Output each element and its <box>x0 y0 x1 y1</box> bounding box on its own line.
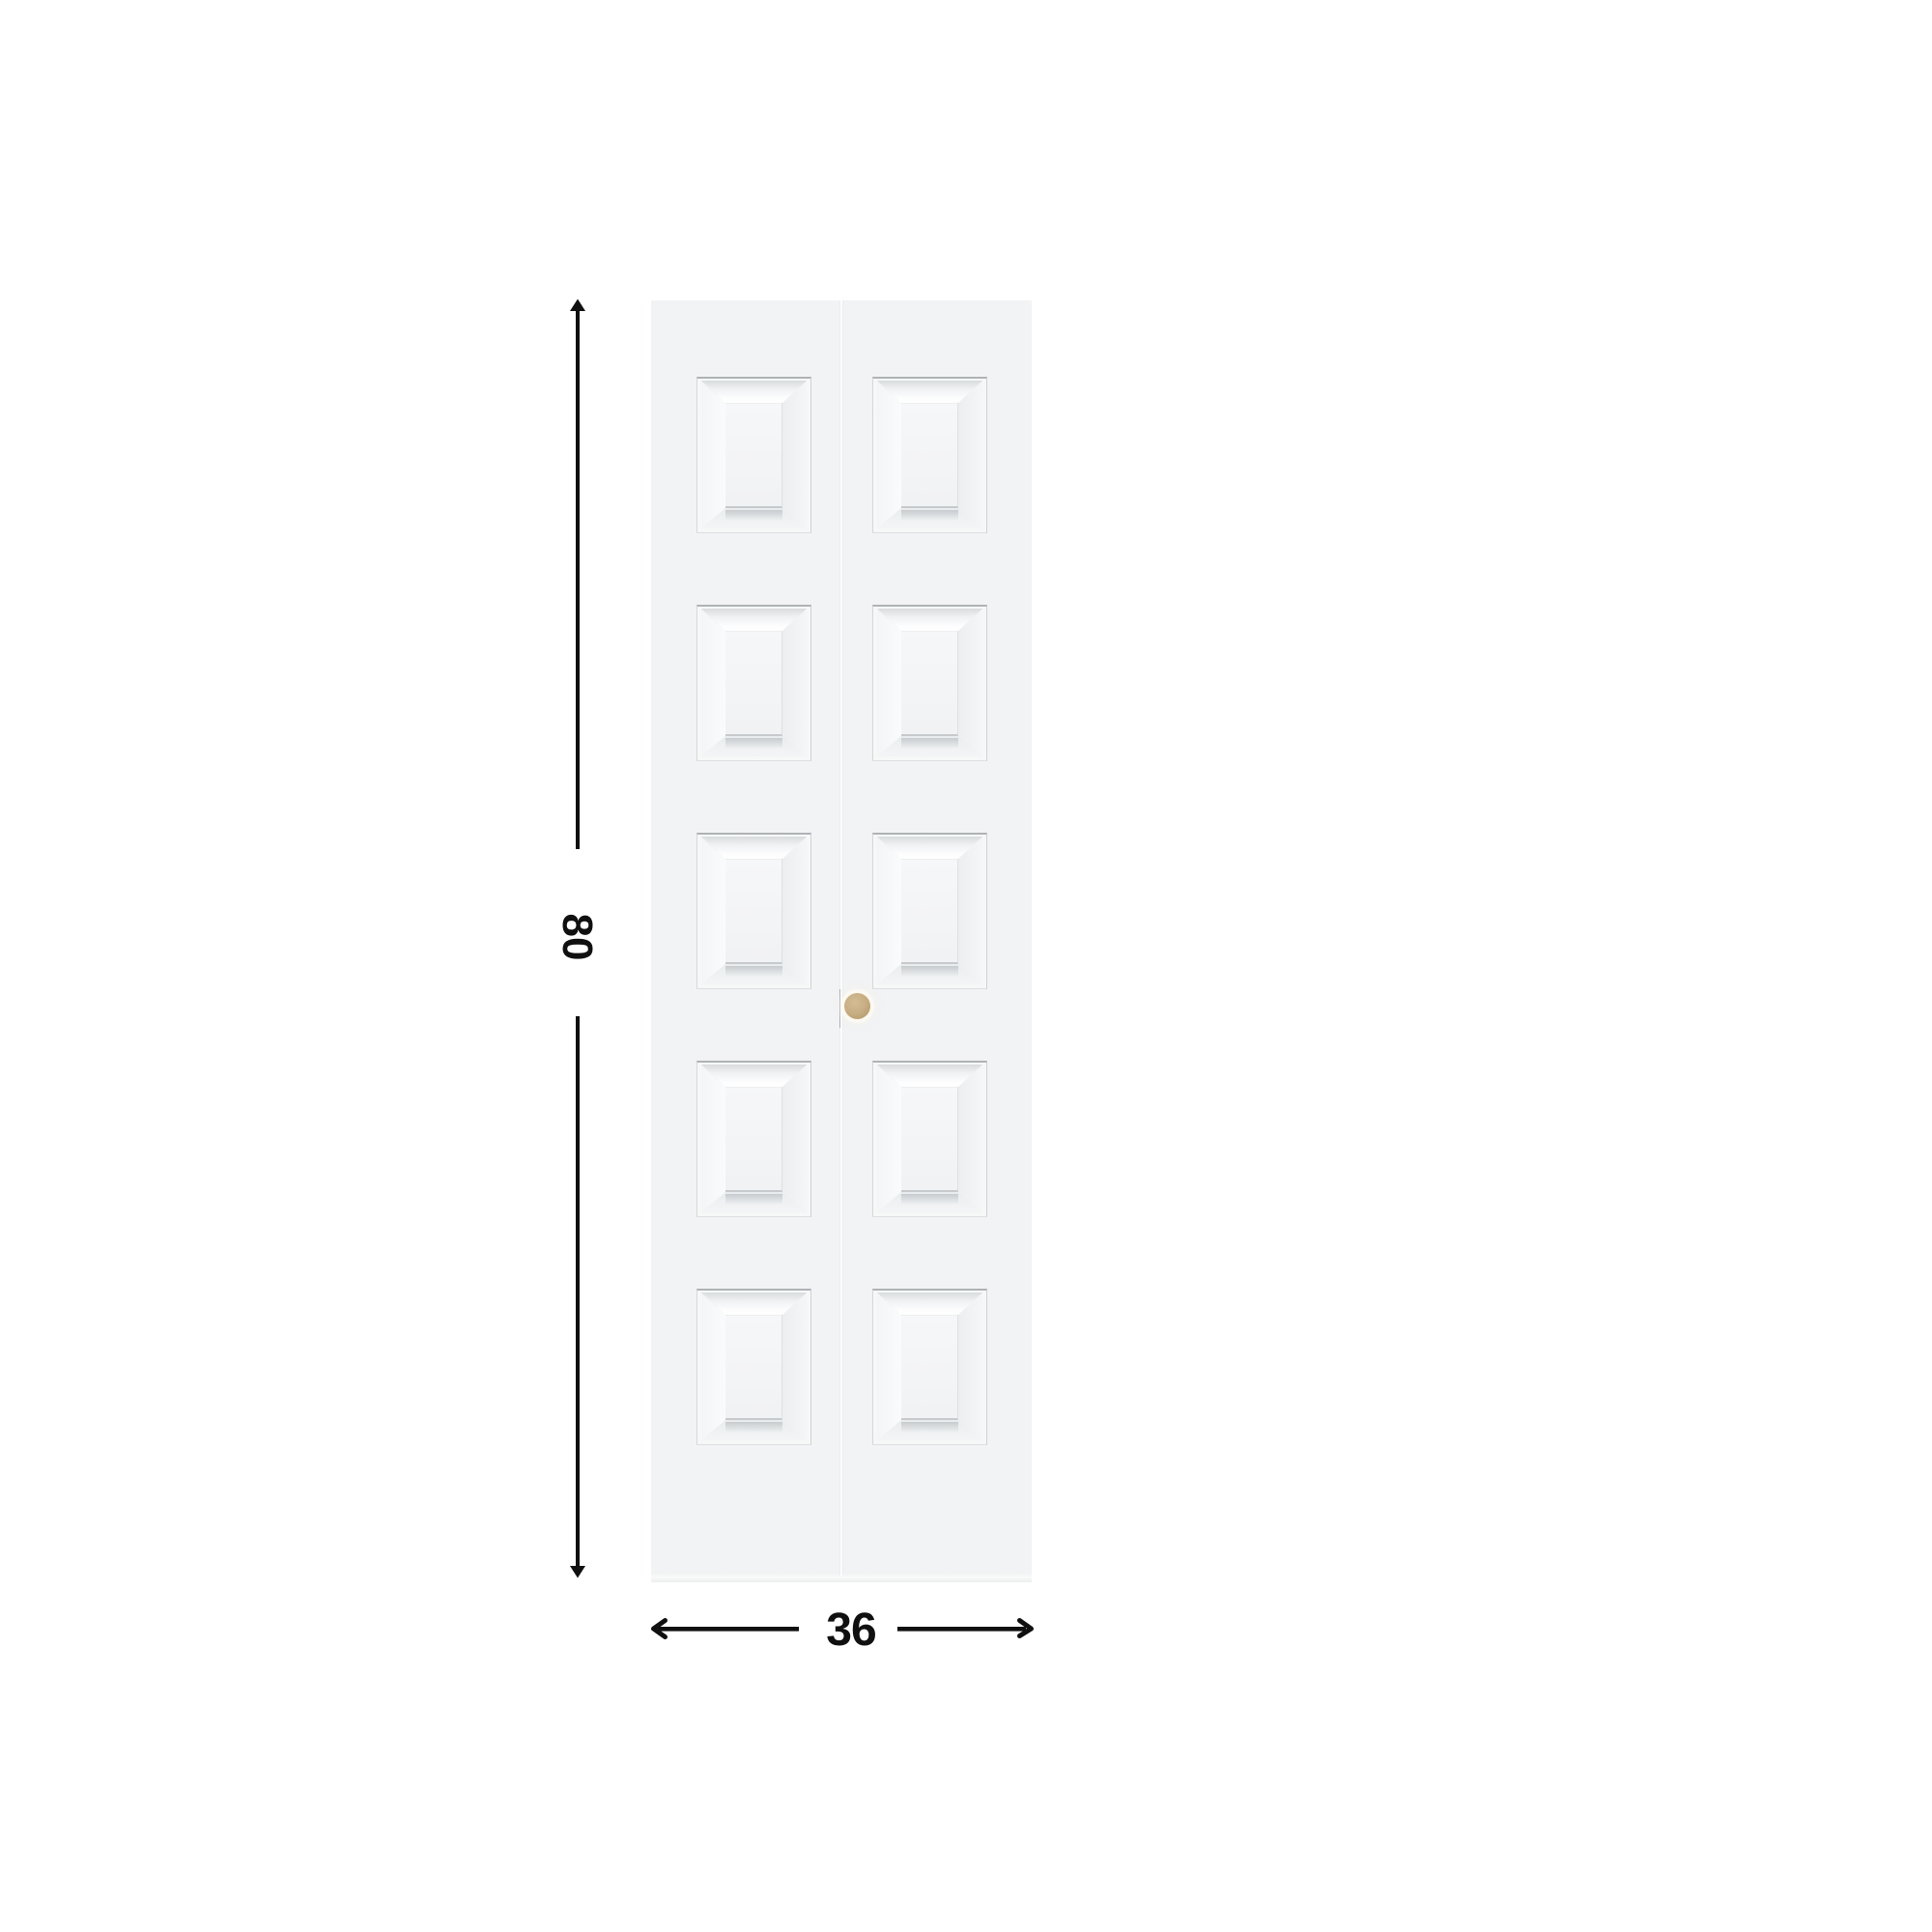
svg-text:80: 80 <box>554 914 601 961</box>
svg-text:36: 36 <box>826 1605 875 1656</box>
